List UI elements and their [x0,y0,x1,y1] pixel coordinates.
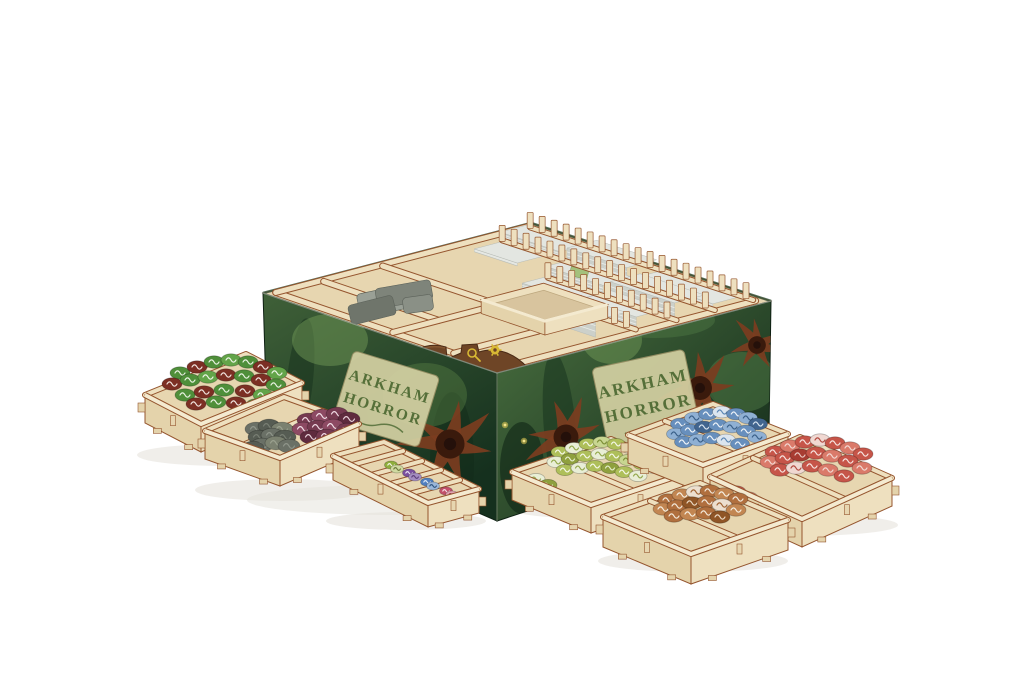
tray-foot-tab [435,523,443,528]
corner-tab [138,403,145,412]
finger-joint-slot [549,495,554,505]
tray-foot-tab [260,479,268,484]
finger-joint-slot [171,416,176,426]
tray-foot-tab [618,554,626,559]
finger-joint-slot [317,447,322,457]
corner-tab [892,486,899,495]
tray-foot-tab [350,489,358,494]
finger-joint-slot [378,484,383,494]
glow-light-core [504,424,507,427]
finger-joint-slot [845,505,850,515]
tray-foot-tab [818,537,826,542]
corner-tab [479,497,486,506]
corner-tab [621,443,628,452]
finger-joint-slot [663,456,668,466]
corner-tab [198,439,205,448]
tray-foot-tab [708,576,716,581]
corner-tab [505,480,512,489]
tray-foot-tab [464,515,472,520]
corner-tab [596,525,603,534]
glow-light-core [523,440,526,443]
tray-foot-tab [153,428,161,433]
finger-joint-slot [737,544,742,554]
tray-foot-tab [185,445,193,450]
tray-foot-tab [763,556,771,561]
finger-joint-slot [240,451,245,461]
tray-foot-tab [525,506,533,511]
finger-joint-slot [451,501,456,511]
finger-joint-slot [645,543,650,553]
tray-foot-tab [641,469,649,474]
scene-svg: ARKHAM HORROR ARKHAM HORROR [0,0,1024,683]
tray-foot-tab [293,478,301,483]
corner-tab [788,528,795,537]
tray-foot-tab [868,514,876,519]
product-photo: ARKHAM HORROR ARKHAM HORROR [0,0,1024,683]
tray-foot-tab [668,575,676,580]
tray-foot-tab [403,516,411,521]
tray-foot-tab [570,525,578,530]
corner-tab [302,391,309,400]
tray-foot-tab [218,464,226,469]
corner-tab [326,464,333,473]
corner-tab [359,432,366,441]
